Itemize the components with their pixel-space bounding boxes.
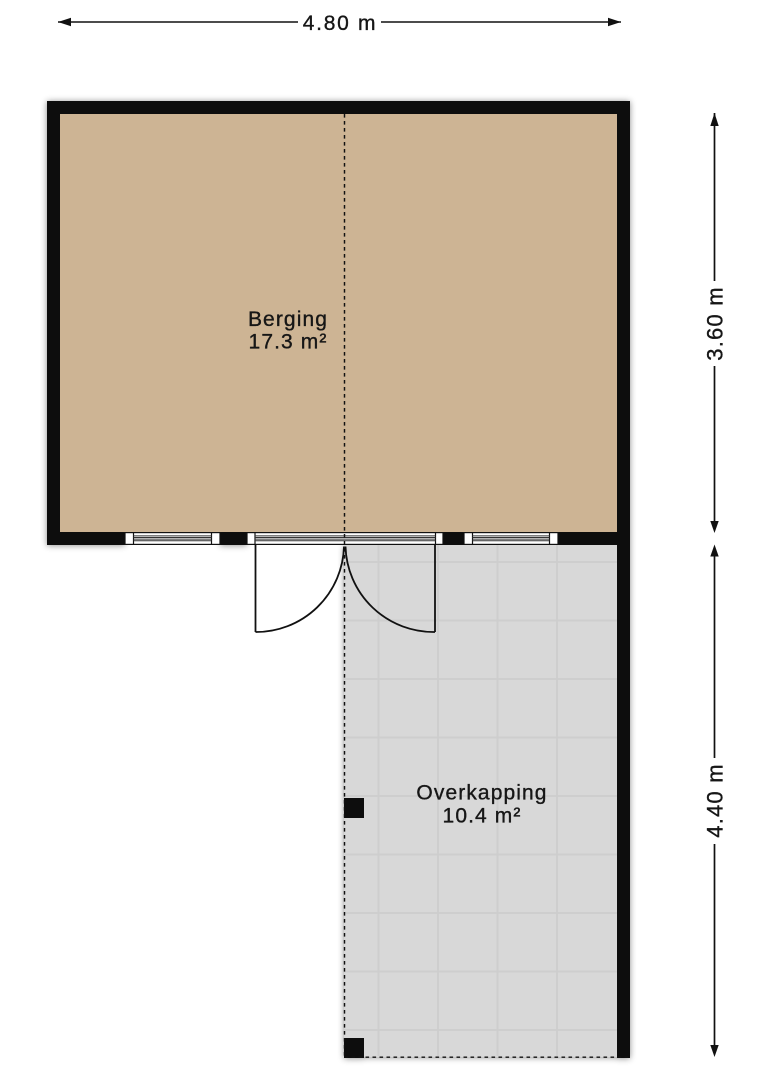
svg-text:10.4 m²: 10.4 m² <box>443 805 522 828</box>
svg-text:Overkapping: Overkapping <box>416 782 547 805</box>
svg-text:4.80 m: 4.80 m <box>303 12 377 35</box>
svg-text:4.40 m: 4.40 m <box>703 763 728 837</box>
svg-text:17.3 m²: 17.3 m² <box>249 331 328 354</box>
svg-text:3.60 m: 3.60 m <box>703 286 728 360</box>
svg-text:Berging: Berging <box>248 308 328 331</box>
